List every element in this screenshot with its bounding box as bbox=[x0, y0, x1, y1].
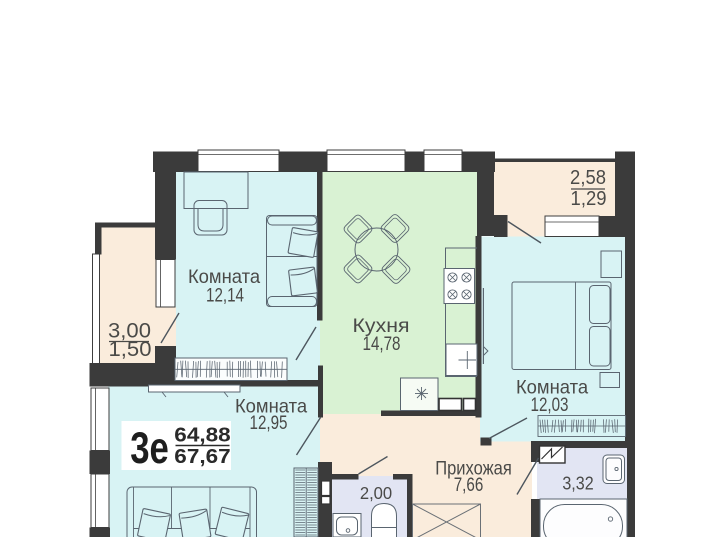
svg-text:12,14: 12,14 bbox=[206, 284, 244, 306]
svg-text:7,66: 7,66 bbox=[454, 473, 484, 495]
svg-text:14,78: 14,78 bbox=[362, 332, 400, 354]
svg-text:12,95: 12,95 bbox=[249, 411, 287, 433]
svg-text:12,03: 12,03 bbox=[530, 393, 568, 415]
svg-text:2,00: 2,00 bbox=[360, 484, 392, 503]
svg-text:67,67: 67,67 bbox=[174, 445, 230, 468]
svg-text:3е: 3е bbox=[130, 424, 169, 473]
svg-text:64,88: 64,88 bbox=[174, 423, 230, 446]
svg-text:2,58: 2,58 bbox=[570, 166, 606, 189]
svg-text:1,29: 1,29 bbox=[571, 187, 607, 210]
svg-text:1,50: 1,50 bbox=[109, 337, 152, 360]
svg-text:3,32: 3,32 bbox=[562, 472, 593, 493]
